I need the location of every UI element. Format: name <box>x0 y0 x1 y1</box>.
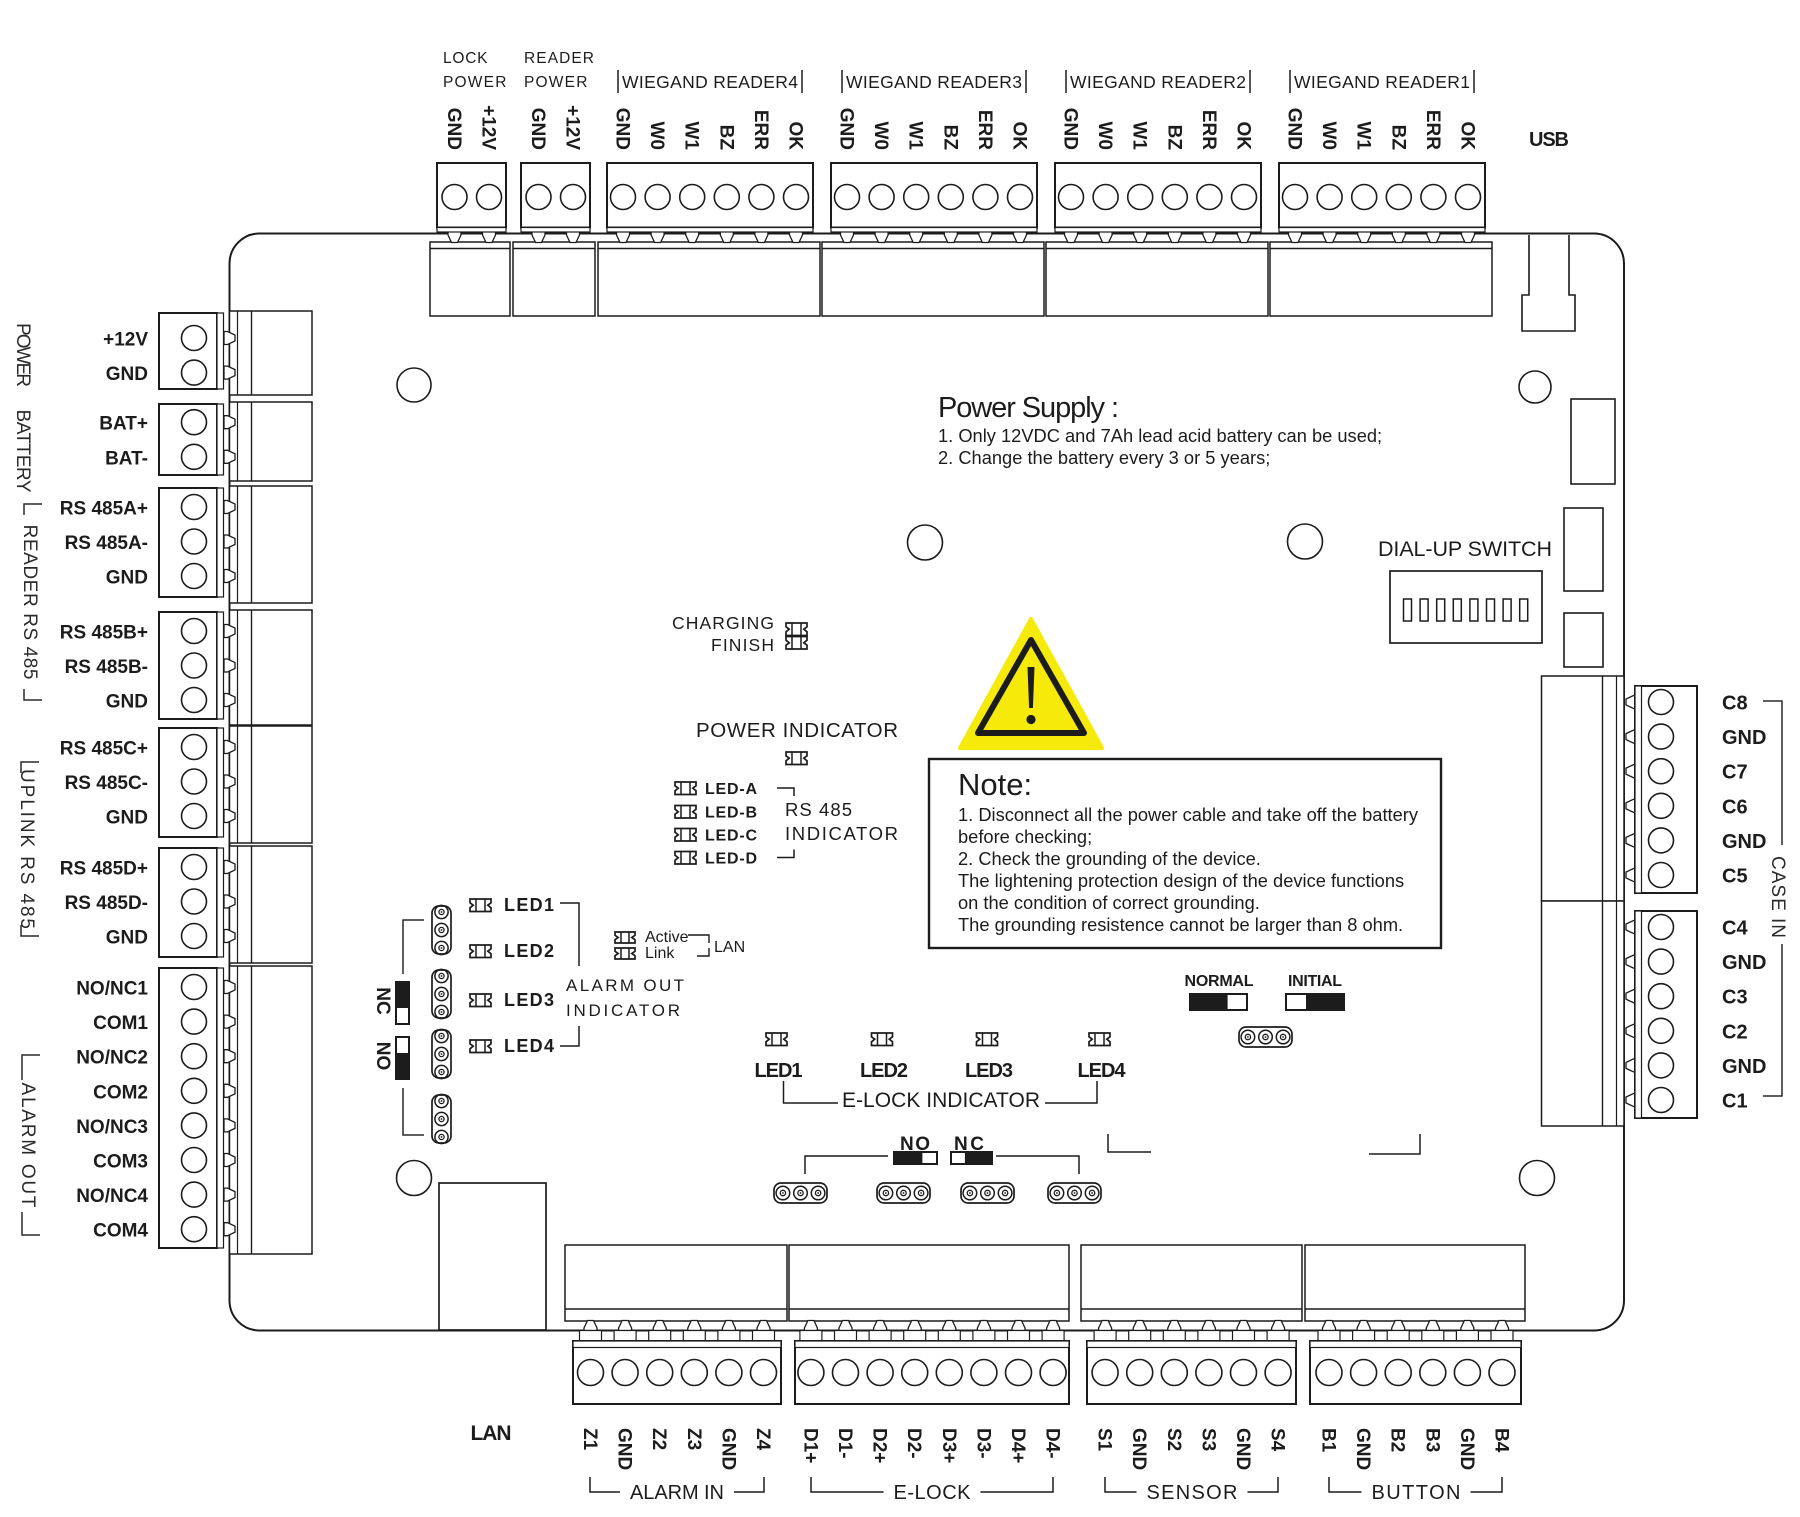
svg-text:LED1: LED1 <box>755 1060 803 1082</box>
svg-text:POWER: POWER <box>524 74 587 91</box>
svg-text:WIEGAND READER4: WIEGAND READER4 <box>622 72 798 92</box>
svg-text:W1: W1 <box>681 122 702 151</box>
svg-text:D1+: D1+ <box>799 1428 820 1463</box>
svg-text:B1: B1 <box>1318 1428 1339 1453</box>
svg-text:D4-: D4- <box>1042 1428 1063 1459</box>
svg-text:W0: W0 <box>870 122 891 151</box>
svg-text:DIAL-UP SWITCH: DIAL-UP SWITCH <box>1378 537 1552 561</box>
svg-text:LOCK: LOCK <box>443 50 488 67</box>
svg-text:W1: W1 <box>905 122 926 151</box>
svg-text:GND: GND <box>106 808 148 829</box>
svg-text:D1-: D1- <box>834 1428 855 1459</box>
svg-text:RS 485B+: RS 485B+ <box>60 623 148 644</box>
svg-text:RS 485C+: RS 485C+ <box>60 739 148 760</box>
svg-text:LED-A: LED-A <box>705 781 757 798</box>
svg-text:USB: USB <box>1529 129 1569 151</box>
svg-text:READER: READER <box>524 50 594 67</box>
svg-text:LED-C: LED-C <box>705 828 757 845</box>
svg-text:LED4: LED4 <box>504 1036 554 1056</box>
svg-text:OK: OK <box>1233 122 1254 151</box>
svg-text:2. Change the battery every 3: 2. Change the battery every 3 or 5 years… <box>938 447 1270 468</box>
svg-text:GND: GND <box>443 108 464 150</box>
svg-text:GND: GND <box>106 692 148 713</box>
svg-text:LAN: LAN <box>714 939 745 956</box>
svg-text:NO/NC2: NO/NC2 <box>76 1048 148 1069</box>
svg-text:NC: NC <box>372 987 393 1015</box>
svg-text:GND: GND <box>527 108 548 150</box>
svg-text:The lightening protection desi: The lightening protection design of the … <box>958 870 1404 891</box>
svg-text:ALARM OUT: ALARM OUT <box>17 1083 38 1208</box>
svg-text:Link: Link <box>645 945 675 962</box>
svg-text:2. Check the grounding of the: 2. Check the grounding of the device. <box>958 848 1261 869</box>
svg-text:CASE IN: CASE IN <box>1767 856 1788 938</box>
svg-text:LED3: LED3 <box>965 1060 1013 1082</box>
svg-text:LED-B: LED-B <box>705 805 757 822</box>
svg-text:NORMAL: NORMAL <box>1185 973 1254 990</box>
svg-text:POWER INDICATOR: POWER INDICATOR <box>696 719 898 742</box>
svg-text:COM2: COM2 <box>93 1082 148 1103</box>
svg-text:Z3: Z3 <box>683 1428 704 1450</box>
svg-text:W0: W0 <box>646 122 667 151</box>
svg-text:NO: NO <box>372 1042 393 1071</box>
svg-text:LED3: LED3 <box>504 990 554 1010</box>
svg-text:C3: C3 <box>1722 987 1748 1009</box>
svg-text:BATTERY: BATTERY <box>12 410 33 493</box>
svg-text:ERR: ERR <box>750 110 771 150</box>
svg-text:C4: C4 <box>1722 918 1748 940</box>
svg-text:GND: GND <box>1060 108 1081 150</box>
svg-text:GND: GND <box>106 928 148 949</box>
svg-text:BAT-: BAT- <box>105 448 148 469</box>
svg-text:S4: S4 <box>1267 1428 1288 1452</box>
svg-text:Active: Active <box>645 929 689 946</box>
svg-text:The grounding resistence canno: The grounding resistence cannot be large… <box>958 914 1403 935</box>
svg-text:INDICATOR: INDICATOR <box>566 1001 680 1020</box>
svg-text:RS 485D-: RS 485D- <box>65 893 148 914</box>
svg-text:1. Only 12VDC and 7Ah lead aci: 1. Only 12VDC and 7Ah lead acid battery … <box>938 425 1382 446</box>
svg-text:W1: W1 <box>1353 122 1374 151</box>
svg-text:NO/NC1: NO/NC1 <box>76 979 148 1000</box>
svg-text:INDICATOR: INDICATOR <box>785 823 898 844</box>
svg-text:POWER: POWER <box>443 74 506 91</box>
svg-text:LED1: LED1 <box>504 895 554 915</box>
svg-text:GND: GND <box>717 1428 738 1470</box>
svg-text:LED4: LED4 <box>1078 1060 1127 1082</box>
svg-text:POWER: POWER <box>12 323 33 387</box>
svg-text:GND: GND <box>1456 1428 1477 1470</box>
svg-text:RS 485A-: RS 485A- <box>65 533 148 554</box>
svg-text:WIEGAND READER2: WIEGAND READER2 <box>1070 72 1246 92</box>
svg-text:LED2: LED2 <box>860 1060 908 1082</box>
svg-text:WIEGAND READER3: WIEGAND READER3 <box>846 72 1022 92</box>
svg-text:ERR: ERR <box>974 110 995 150</box>
svg-text:+12V: +12V <box>562 105 583 150</box>
svg-text:D4+: D4+ <box>1007 1428 1028 1463</box>
svg-text:BZ: BZ <box>1163 125 1184 151</box>
svg-text:GND: GND <box>106 568 148 589</box>
svg-text:W0: W0 <box>1318 122 1339 151</box>
svg-text:Note:: Note: <box>958 767 1032 802</box>
svg-text:+12V: +12V <box>478 105 499 150</box>
svg-text:ALARM IN: ALARM IN <box>630 1482 724 1504</box>
svg-text:C7: C7 <box>1722 762 1748 784</box>
svg-text:GND: GND <box>1128 1428 1149 1470</box>
svg-text:GND: GND <box>1352 1428 1373 1470</box>
svg-text:RS 485B-: RS 485B- <box>65 657 148 678</box>
svg-text:on the condition of correct gr: on the condition of correct grounding. <box>958 892 1260 913</box>
svg-text:BZ: BZ <box>715 125 736 151</box>
svg-text:COM3: COM3 <box>93 1152 148 1173</box>
svg-text:GND: GND <box>1722 952 1766 974</box>
svg-text:GND: GND <box>106 364 148 385</box>
svg-text:OK: OK <box>1457 122 1478 151</box>
svg-text:GND: GND <box>1232 1428 1253 1470</box>
svg-text:BZ: BZ <box>939 125 960 151</box>
svg-text:B3: B3 <box>1421 1428 1442 1452</box>
svg-text:INITIAL: INITIAL <box>1288 973 1342 990</box>
svg-text:S3: S3 <box>1197 1428 1218 1451</box>
svg-text:C8: C8 <box>1722 693 1748 715</box>
svg-text:D2-: D2- <box>903 1428 924 1459</box>
svg-text:GND: GND <box>1722 727 1766 749</box>
svg-text:OK: OK <box>785 122 806 151</box>
svg-text:BZ: BZ <box>1387 125 1408 151</box>
svg-text:C1: C1 <box>1722 1091 1748 1113</box>
svg-text:1. Disconnect all the power ca: 1. Disconnect all the power cable and ta… <box>958 804 1419 825</box>
svg-text:GND: GND <box>1722 1056 1766 1078</box>
svg-text:GND: GND <box>612 108 633 150</box>
svg-text:B4: B4 <box>1491 1428 1512 1453</box>
svg-text:FINISH: FINISH <box>711 635 774 655</box>
svg-text:OK: OK <box>1009 122 1030 151</box>
svg-text:before checking;: before checking; <box>958 826 1092 847</box>
svg-text:NO/NC3: NO/NC3 <box>76 1117 148 1138</box>
svg-text:LAN: LAN <box>471 1422 512 1445</box>
svg-text:S1: S1 <box>1094 1428 1115 1452</box>
svg-text:+12V: +12V <box>103 330 148 351</box>
svg-text:Z4: Z4 <box>752 1428 773 1451</box>
svg-text:B2: B2 <box>1387 1428 1408 1452</box>
svg-text:CHARGING: CHARGING <box>672 613 774 633</box>
svg-text:LED2: LED2 <box>504 941 554 961</box>
svg-text:WIEGAND READER1: WIEGAND READER1 <box>1294 72 1470 92</box>
svg-text:ERR: ERR <box>1198 110 1219 150</box>
svg-text:RS 485D+: RS 485D+ <box>60 859 148 880</box>
svg-text:D3-: D3- <box>972 1428 993 1459</box>
svg-text:GND: GND <box>614 1428 635 1470</box>
svg-text:UPLINK RS 485: UPLINK RS 485 <box>16 769 37 929</box>
svg-text:D3+: D3+ <box>938 1428 959 1463</box>
svg-text:COM4: COM4 <box>93 1221 148 1242</box>
svg-text:ERR: ERR <box>1422 110 1443 150</box>
svg-text:RS 485A+: RS 485A+ <box>60 499 148 520</box>
svg-text:GND: GND <box>1284 108 1305 150</box>
svg-text:C6: C6 <box>1722 796 1748 818</box>
svg-text:RS 485C-: RS 485C- <box>65 773 148 794</box>
svg-text:BAT+: BAT+ <box>99 414 148 435</box>
svg-text:GND: GND <box>836 108 857 150</box>
svg-text:W0: W0 <box>1094 122 1115 151</box>
svg-text:Z1: Z1 <box>579 1428 600 1451</box>
svg-text:E-LOCK INDICATOR: E-LOCK INDICATOR <box>842 1089 1040 1112</box>
svg-text:Z2: Z2 <box>648 1428 669 1450</box>
svg-text:NO/NC4: NO/NC4 <box>76 1186 148 1207</box>
svg-text:S2: S2 <box>1163 1428 1184 1451</box>
svg-text:C5: C5 <box>1722 866 1748 888</box>
svg-text:RS 485: RS 485 <box>785 799 852 820</box>
svg-text:COM1: COM1 <box>93 1013 148 1034</box>
svg-text:Power Supply :: Power Supply : <box>938 392 1119 424</box>
svg-text:GND: GND <box>1722 831 1766 853</box>
svg-text:W1: W1 <box>1129 122 1150 151</box>
svg-text:LED-D: LED-D <box>705 851 757 868</box>
svg-text:D2+: D2+ <box>869 1428 890 1463</box>
svg-text:E-LOCK: E-LOCK <box>894 1482 972 1504</box>
svg-text:ALARM OUT: ALARM OUT <box>566 976 684 995</box>
svg-text:READER RS 485: READER RS 485 <box>19 525 40 680</box>
svg-text:C2: C2 <box>1722 1021 1748 1043</box>
